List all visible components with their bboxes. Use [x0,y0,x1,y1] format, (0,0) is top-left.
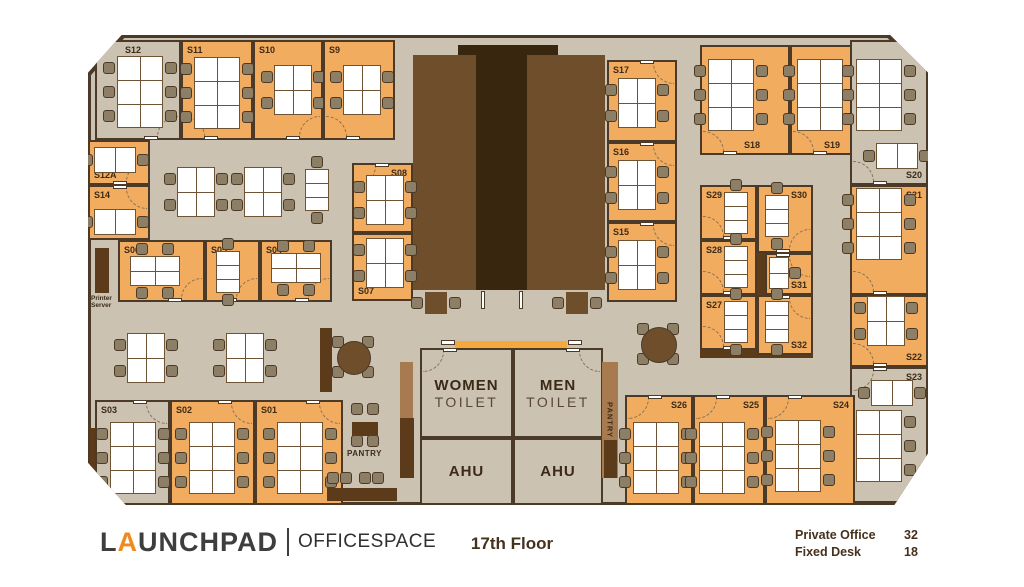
women-toilet-zone: WOMENTOILET [420,348,513,438]
desk-table [765,301,789,343]
desk-table [856,410,902,482]
table-line [770,273,788,274]
chair [216,173,228,185]
table-line [217,265,239,266]
door-arc [299,116,320,137]
desk-table [618,160,656,210]
chair [904,464,916,476]
door-slit [519,291,523,309]
chair [137,216,149,228]
chair [158,428,170,440]
chair [81,154,93,166]
legend-stat-label: Private Office [795,527,890,544]
chair [405,270,417,282]
chair [605,192,617,204]
desk-table [271,253,321,283]
table-line [367,263,403,264]
desk-table [724,192,748,234]
desk-table [797,59,843,131]
chair [303,240,315,252]
door-arc [696,398,717,419]
table-line [820,60,821,130]
cabinet [95,248,109,293]
table-line [857,107,901,108]
chair [619,428,631,440]
desk-table [856,59,902,131]
table-line [725,206,747,207]
door-slit [813,151,827,155]
chair [823,450,835,462]
table-line [195,105,239,106]
chair [166,365,178,377]
room-label-s24: S24 [833,400,849,410]
door-slit [113,185,127,189]
table-line [278,446,322,447]
door-slit [640,60,654,64]
chair [685,428,697,440]
door-slit [306,400,320,404]
room-label-s12: S12 [125,45,141,55]
door-arc [326,116,347,137]
table-line [725,260,747,261]
chair [327,472,339,484]
bench-table [566,292,588,314]
chair [756,65,768,77]
ahu-left-zone: AHU [420,438,513,505]
chair [237,476,249,488]
chair [694,89,706,101]
chair [789,267,801,279]
chair [405,181,417,193]
door-slit [568,340,582,345]
table-line [725,315,747,316]
chair [919,150,931,162]
chair [263,428,275,440]
desk-table [856,188,902,260]
chair [685,452,697,464]
chair [605,110,617,122]
table-line [700,470,744,471]
pantry-text-label: PANTRY [347,449,382,458]
round-table [337,341,371,375]
chair [263,476,275,488]
chair [325,452,337,464]
building-core [476,45,527,290]
door-arc [653,63,674,84]
chair [231,199,243,211]
desk-table [274,65,312,115]
door-slit [723,151,737,155]
chair [330,97,342,109]
table-line [634,446,678,447]
chair [261,97,273,109]
chair [162,243,174,255]
chair [136,243,148,255]
floorplan-page: WOMENTOILETMENTOILETAHUAHUPANTRYS12S11S1… [0,0,1024,587]
service-strip [604,440,617,478]
room-label-s10: S10 [259,45,275,55]
chair [311,156,323,168]
chair [265,339,277,351]
chair [180,87,192,99]
desk-table [867,296,905,346]
room-label-s20: S20 [906,170,922,180]
table-line [278,470,322,471]
table-line [798,83,842,84]
chair [823,474,835,486]
chair [605,246,617,258]
chair [405,244,417,256]
room-label-s30: S30 [791,190,807,200]
desk-table [343,65,381,115]
chair [359,472,371,484]
chair [605,272,617,284]
door-slit [788,395,802,399]
chair [137,154,149,166]
door-slit [286,136,300,140]
chair [213,339,225,351]
table-line [722,423,723,493]
legend: Private Office32Fixed Desk18 [795,527,918,561]
entrance-bar [455,341,567,348]
door-slit [640,222,654,226]
desk-table [177,167,215,217]
door-slit [716,395,730,399]
table-line [217,58,218,128]
women-toilet-label: WOMEN [434,377,498,394]
table-line [111,446,155,447]
chair [605,166,617,178]
chair [325,428,337,440]
desk-table [724,246,748,288]
door-arc [319,403,340,424]
door-slit [566,348,580,352]
chair [231,173,243,185]
table-line [619,185,655,186]
chair [694,65,706,77]
service-strip [400,362,413,418]
room-label-s32: S32 [791,340,807,350]
chair [103,62,115,74]
legend-row: Private Office32 [795,527,918,544]
chair [730,288,742,300]
chair [904,113,916,125]
chair [158,452,170,464]
chair [96,428,108,440]
building-core [527,55,605,290]
ahu-left-label: AHU [449,463,485,480]
chair [842,242,854,254]
door-slit [375,163,389,167]
desk-table [769,257,789,289]
chair [761,426,773,438]
desk-table [871,380,913,406]
table-line [857,212,901,213]
chair [162,287,174,299]
table-line [879,189,880,259]
chair [263,452,275,464]
table-line [868,321,904,322]
chair [842,218,854,230]
chair [175,476,187,488]
table-line [776,444,820,445]
table-line [892,381,893,405]
cabinet [757,253,765,295]
chair [261,71,273,83]
desk-table [189,422,235,494]
chair [904,65,916,77]
legend-stat-value: 18 [904,544,918,561]
chair [165,62,177,74]
table-line [766,223,788,224]
chair [351,435,363,447]
chair [904,89,916,101]
chair [164,199,176,211]
door-slit [204,136,218,140]
ahu-right-label: AHU [540,463,576,480]
desk-table [618,240,656,290]
chair [619,476,631,488]
door-slit [295,298,309,302]
women-toilet-label: TOILET [435,394,499,410]
chair [405,207,417,219]
chair [303,284,315,296]
chair [823,426,835,438]
table-line [634,470,678,471]
desk-table [775,420,821,492]
room-label-s28: S28 [706,245,722,255]
chair [114,365,126,377]
door-slit [481,291,485,309]
table-line [766,315,788,316]
table-line [306,183,328,184]
table-line [766,329,788,330]
chair [283,199,295,211]
chair [761,450,773,462]
table-line [857,83,901,84]
door-arc [768,398,789,419]
room-label-s03: S03 [101,405,117,415]
door-arc [181,278,202,299]
table-line [656,423,657,493]
chair [783,65,795,77]
legend-stat-value: 32 [904,527,918,544]
bench-table [425,292,447,314]
table-line [731,60,732,130]
table-line [190,470,234,471]
chair [367,435,379,447]
desk-table [876,143,918,169]
table-line [709,83,753,84]
chair [657,246,669,258]
men-toilet-label: MEN [540,377,576,394]
service-strip [400,418,414,478]
chair [906,328,918,340]
chair [237,428,249,440]
chair [904,194,916,206]
desk-table [765,195,789,237]
room-label-s19: S19 [824,140,840,150]
chair [265,365,277,377]
chair [906,302,918,314]
chair [353,244,365,256]
desk-table [618,78,656,128]
chair [237,452,249,464]
room-label-s17: S17 [613,65,629,75]
chair [103,110,115,122]
chair [103,86,115,98]
door-slit [648,395,662,399]
table-line [857,458,901,459]
room-label-s16: S16 [613,147,629,157]
chair [904,416,916,428]
men-toilet-zone: MENTOILET [513,348,603,438]
door-arc [703,326,724,347]
room-label-s22: S22 [906,352,922,362]
door-arc [853,343,874,364]
chair [382,71,394,83]
door-slit [443,348,457,352]
pantry-counter [327,488,397,501]
chair [694,113,706,125]
room-label-s01: S01 [261,405,277,415]
door-arc [628,398,649,419]
chair [914,387,926,399]
table-line [725,329,747,330]
room-label-s9: S9 [329,45,340,55]
cabinet [320,328,332,392]
table-line [897,144,898,168]
table-line [131,271,179,272]
table-line [700,446,744,447]
table-line [190,446,234,447]
chair [657,192,669,204]
chair [730,179,742,191]
door-arc [146,403,167,424]
chair [605,84,617,96]
table-line [245,192,281,193]
table-line [133,423,134,493]
door-slit [218,400,232,404]
legend-row: Fixed Desk18 [795,544,918,561]
desk-table [94,209,136,235]
chair [81,216,93,228]
table-line [725,274,747,275]
table-line [619,103,655,104]
door-arc [789,229,810,250]
chair [136,287,148,299]
door-arc [653,225,674,246]
chair [180,111,192,123]
chair [277,284,289,296]
chair [340,472,352,484]
table-line [344,90,380,91]
chair [657,166,669,178]
table-line [776,468,820,469]
door-slit [873,367,887,371]
chair [382,97,394,109]
chair [165,110,177,122]
chair [158,476,170,488]
chair [730,233,742,245]
chair [756,113,768,125]
table-line [178,192,214,193]
round-table [641,327,677,363]
door-arc [231,403,252,424]
chair [165,86,177,98]
chair [216,199,228,211]
table-line [275,90,311,91]
door-arc [789,298,810,319]
chair [730,344,742,356]
table-line [217,279,239,280]
chair [590,297,602,309]
chair [353,207,365,219]
desk-table [366,175,404,225]
chair [222,294,234,306]
door-arc [793,131,814,152]
chair [842,194,854,206]
desk-table [226,333,264,383]
table-line [111,470,155,471]
chair [367,403,379,415]
room-label-s26: S26 [671,400,687,410]
men-toilet-label: TOILET [526,394,590,410]
chair [771,288,783,300]
room-label-s11: S11 [187,45,203,55]
chair [552,297,564,309]
chair [904,218,916,230]
table-line [115,210,116,234]
pantry-table [352,422,378,436]
desk-table [724,301,748,343]
chair [175,452,187,464]
desk-table [130,256,180,286]
chair [657,272,669,284]
chair [353,181,365,193]
door-arc [853,161,874,182]
chair [854,302,866,314]
table-line [140,57,141,127]
chair [771,238,783,250]
table-line [195,81,239,82]
table-line [857,236,901,237]
room-label-s31: S31 [791,280,807,290]
chair [771,344,783,356]
chair [842,113,854,125]
desk-table [633,422,679,494]
table-line [227,358,263,359]
chair [353,270,365,282]
table-line [128,358,164,359]
desk-table [127,333,165,383]
chair [180,63,192,75]
door-slit [640,142,654,146]
desk-table [708,59,754,131]
door-slit [346,136,360,140]
door-slit [441,340,455,345]
table-line [212,423,213,493]
chair [761,474,773,486]
table-line [725,220,747,221]
chair [771,182,783,194]
desk-table [110,422,156,494]
table-line [367,200,403,201]
chair [175,428,187,440]
chair [411,297,423,309]
door-arc [423,351,444,372]
table-line [798,421,799,491]
